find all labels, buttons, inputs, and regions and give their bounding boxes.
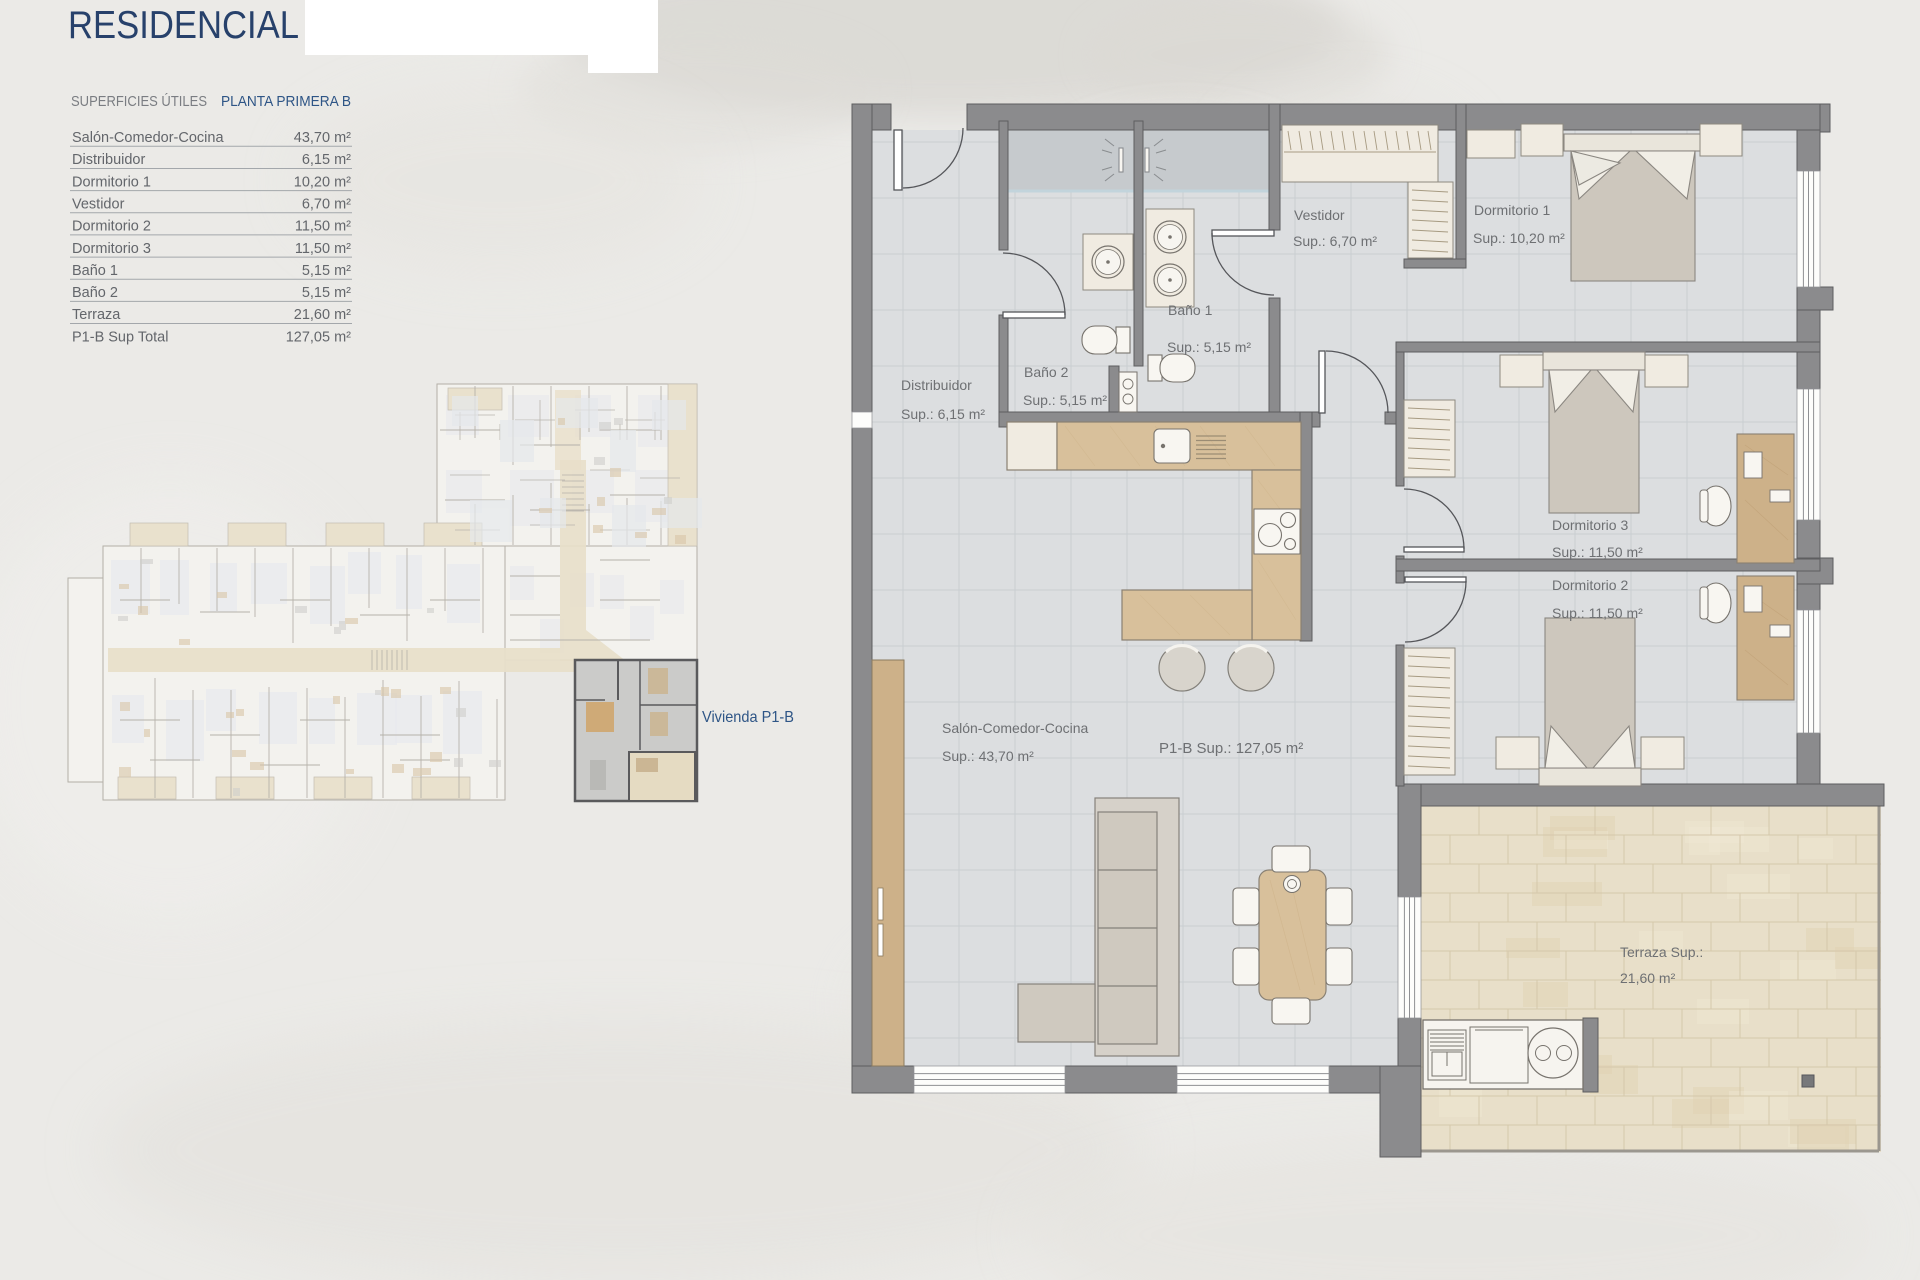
- svg-text:Sup.: 10,20 m²: Sup.: 10,20 m²: [1473, 230, 1565, 246]
- svg-text:Salón-Comedor-Cocina: Salón-Comedor-Cocina: [72, 130, 224, 146]
- svg-text:Baño 2: Baño 2: [1024, 364, 1069, 380]
- svg-text:Sup.: 5,15 m²: Sup.: 5,15 m²: [1023, 392, 1107, 408]
- svg-text:RESIDENCIAL: RESIDENCIAL: [68, 4, 299, 47]
- svg-text:Distribuidor: Distribuidor: [901, 377, 972, 393]
- svg-text:SUPERFICIES ÚTILES: SUPERFICIES ÚTILES: [71, 93, 207, 110]
- svg-text:Terraza: Terraza: [72, 307, 121, 323]
- svg-text:Sup.: 43,70 m²: Sup.: 43,70 m²: [942, 748, 1034, 764]
- svg-text:Sup.: 6,70 m²: Sup.: 6,70 m²: [1293, 233, 1377, 249]
- svg-text:Sup.: 11,50 m²: Sup.: 11,50 m²: [1552, 544, 1643, 560]
- svg-text:Vivienda P1-B: Vivienda P1-B: [702, 709, 794, 726]
- svg-text:6,15 m²: 6,15 m²: [302, 152, 351, 168]
- svg-text:Dormitorio 1: Dormitorio 1: [72, 174, 151, 190]
- svg-text:Distribuidor: Distribuidor: [72, 152, 145, 168]
- svg-text:6,70 m²: 6,70 m²: [302, 196, 351, 212]
- svg-text:5,15 m²: 5,15 m²: [302, 263, 351, 279]
- svg-text:Terraza Sup.:: Terraza Sup.:: [1620, 944, 1703, 960]
- svg-text:21,60 m²: 21,60 m²: [294, 307, 351, 323]
- svg-text:10,20 m²: 10,20 m²: [294, 174, 351, 190]
- svg-text:Dormitorio 3: Dormitorio 3: [72, 241, 151, 257]
- svg-text:Salón-Comedor-Cocina: Salón-Comedor-Cocina: [942, 720, 1089, 736]
- svg-text:Dormitorio 2: Dormitorio 2: [1552, 577, 1628, 593]
- svg-text:Sup.: 11,50 m²: Sup.: 11,50 m²: [1552, 605, 1643, 621]
- svg-text:5,15 m²: 5,15 m²: [302, 285, 351, 301]
- svg-text:Dormitorio 2: Dormitorio 2: [72, 219, 151, 235]
- svg-text:P1-B Sup Total: P1-B Sup Total: [72, 329, 168, 345]
- svg-text:Dormitorio 3: Dormitorio 3: [1552, 517, 1628, 533]
- svg-text:11,50 m²: 11,50 m²: [295, 219, 351, 235]
- svg-text:21,60 m²: 21,60 m²: [1620, 970, 1676, 986]
- svg-text:Baño 1: Baño 1: [72, 263, 118, 279]
- svg-text:Sup.: 5,15 m²: Sup.: 5,15 m²: [1167, 339, 1251, 355]
- svg-text:11,50 m²: 11,50 m²: [295, 241, 351, 257]
- svg-text:PLANTA PRIMERA B: PLANTA PRIMERA B: [221, 93, 351, 110]
- svg-text:127,05 m²: 127,05 m²: [286, 329, 351, 345]
- svg-text:Vestidor: Vestidor: [72, 196, 125, 212]
- svg-text:Baño 1: Baño 1: [1168, 302, 1213, 318]
- svg-text:Vestidor: Vestidor: [1294, 207, 1345, 223]
- svg-text:P1-B Sup.: 127,05 m²: P1-B Sup.: 127,05 m²: [1159, 740, 1303, 757]
- svg-text:Baño 2: Baño 2: [72, 285, 118, 301]
- svg-text:43,70 m²: 43,70 m²: [294, 130, 351, 146]
- svg-text:Sup.: 6,15 m²: Sup.: 6,15 m²: [901, 406, 985, 422]
- svg-text:Dormitorio 1: Dormitorio 1: [1474, 202, 1550, 218]
